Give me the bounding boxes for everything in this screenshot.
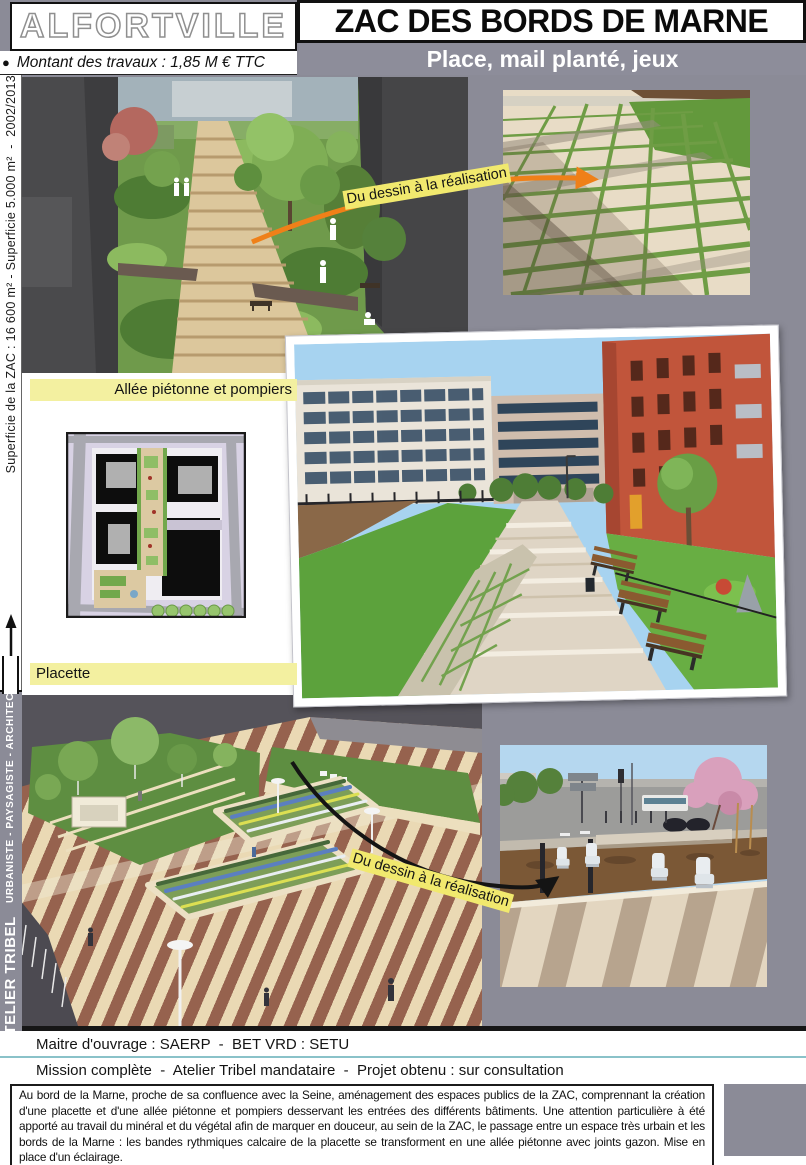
cost-text: Montant des travaux : 1,85 M € TTC: [17, 54, 265, 72]
label-allee-pietonne: Allée piétonne et pompiers: [30, 379, 297, 401]
project-title-box: ZAC DES BORDS DE MARNE: [297, 0, 806, 43]
sidebar-firm: ATELIER TRIBEL URBANISTE - PAYSAGISTE - …: [0, 690, 22, 1031]
firm-separator: [2, 903, 19, 916]
photo-placette-realisee: [500, 745, 767, 987]
photo-placette-graphic: [500, 745, 767, 987]
project-info-vertical-text: Superficie de la ZAC : 16 600 m² - Super…: [4, 75, 18, 481]
project-title: ZAC DES BORDS DE MARNE: [335, 3, 768, 40]
rendering-placette: [20, 695, 482, 1032]
firm-roles: URBANISTE - PAYSAGISTE - ARCHITECTE: [5, 679, 16, 903]
project-description: Au bord de la Marne, proche de sa conflu…: [19, 1088, 705, 1165]
sidebar-legend-box: [2, 656, 19, 694]
photo-allee-graphic: [294, 334, 778, 699]
sidebar-project-info: Superficie de la ZAC : 16 600 m² - Super…: [0, 75, 22, 690]
bullet-icon: ●: [2, 56, 10, 69]
photo-paving-grass-joints: [503, 90, 750, 295]
firm-vertical-text: ATELIER TRIBEL URBANISTE - PAYSAGISTE - …: [2, 679, 20, 1045]
project-sheet: ALFORTVILLE ZAC DES BORDS DE MARNE Place…: [0, 0, 806, 1165]
rendering-allee-pietonne: [22, 77, 468, 373]
rendering-allee-graphic: [22, 77, 468, 373]
label-placette-text: Placette: [36, 665, 90, 682]
firm-name: ATELIER TRIBEL: [2, 916, 19, 1044]
footer-teal-rule: [0, 1056, 806, 1058]
project-subtitle: Place, mail planté, jeux: [427, 46, 679, 73]
city-name-box: ALFORTVILLE: [10, 2, 297, 51]
footer-gray-patch: [724, 1084, 806, 1156]
cost-box: ● Montant des travaux : 1,85 M € TTC: [0, 51, 297, 75]
photo-paving-graphic: [503, 90, 750, 295]
site-plan-map: [66, 432, 246, 618]
photo-allee-realisee: [285, 324, 787, 707]
city-name: ALFORTVILLE: [20, 7, 287, 46]
project-subtitle-band: Place, mail planté, jeux: [299, 43, 806, 75]
label-placette: Placette: [30, 663, 297, 685]
footer-owner-line: Maitre d'ouvrage : SAERP - BET VRD : SET…: [36, 1036, 349, 1053]
project-description-box: Au bord de la Marne, proche de sa conflu…: [10, 1084, 714, 1165]
rendering-placette-graphic: [20, 695, 482, 1032]
label-allee-text: Allée piétonne et pompiers: [114, 381, 292, 398]
footer-mission-line: Mission complète - Atelier Tribel mandat…: [36, 1062, 564, 1079]
site-plan-graphic: [66, 432, 246, 618]
